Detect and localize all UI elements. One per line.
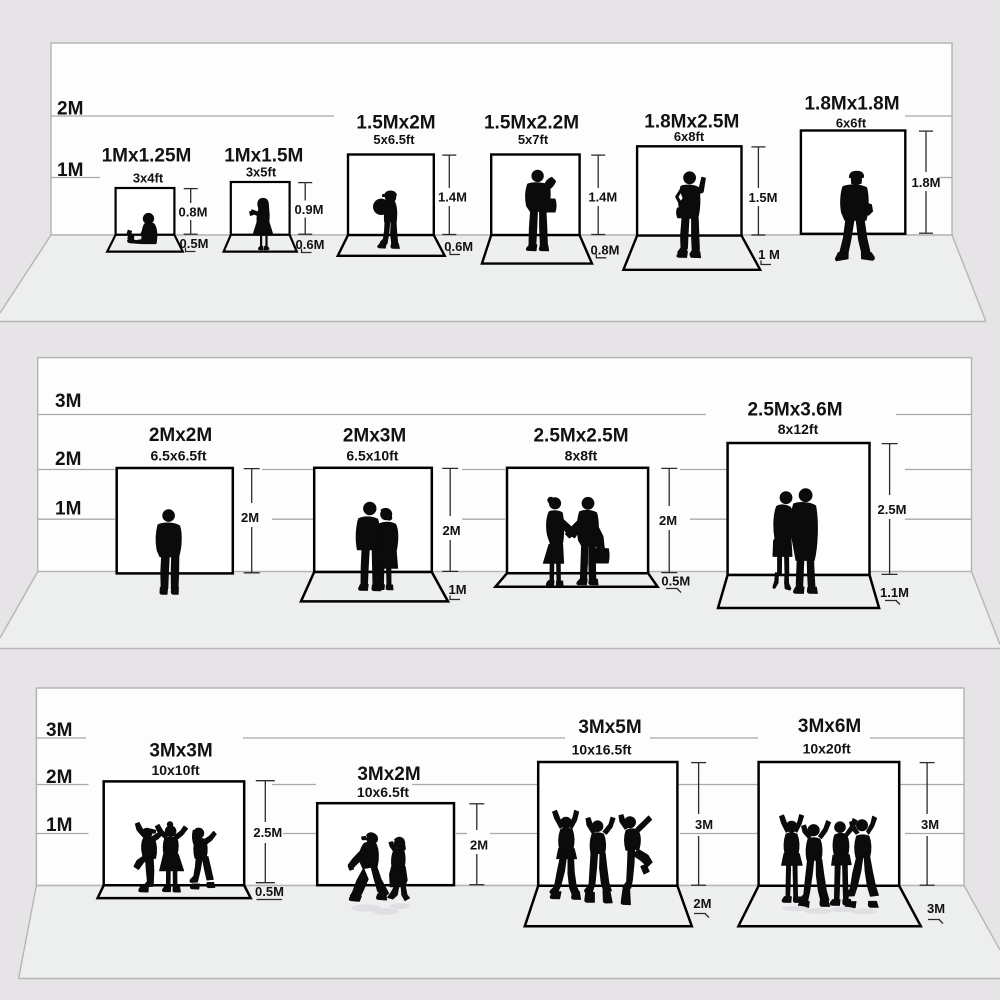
svg-text:10x16.5ft: 10x16.5ft	[572, 742, 632, 758]
svg-text:0.5M: 0.5M	[661, 573, 690, 588]
svg-text:2M: 2M	[57, 99, 83, 120]
svg-text:0.6M: 0.6M	[444, 239, 473, 254]
svg-text:3M: 3M	[695, 817, 713, 832]
svg-text:1M: 1M	[57, 160, 83, 181]
svg-text:1Mx1.5M: 1Mx1.5M	[224, 146, 303, 167]
svg-text:3M: 3M	[927, 901, 945, 916]
svg-text:0.8M: 0.8M	[591, 242, 620, 257]
svg-text:10x20ft: 10x20ft	[803, 741, 852, 757]
svg-text:8x12ft: 8x12ft	[778, 421, 819, 437]
svg-text:1.5Mx2M: 1.5Mx2M	[356, 113, 435, 134]
svg-text:2M: 2M	[470, 838, 488, 853]
svg-text:2.5Mx3.6M: 2.5Mx3.6M	[747, 400, 842, 421]
svg-text:6.5x10ft: 6.5x10ft	[346, 448, 398, 464]
svg-text:1.4M: 1.4M	[438, 190, 467, 205]
svg-text:1.5Mx2.2M: 1.5Mx2.2M	[484, 113, 579, 134]
svg-text:1.8M: 1.8M	[912, 175, 941, 190]
svg-text:2M: 2M	[55, 449, 81, 470]
svg-text:2Mx2M: 2Mx2M	[149, 425, 212, 446]
svg-text:2M: 2M	[659, 513, 677, 528]
svg-text:10x10ft: 10x10ft	[151, 762, 200, 778]
svg-text:2Mx3M: 2Mx3M	[343, 426, 406, 447]
svg-text:5x7ft: 5x7ft	[518, 132, 549, 147]
svg-text:1.1M: 1.1M	[880, 585, 909, 600]
svg-text:6.5x6.5ft: 6.5x6.5ft	[150, 448, 206, 464]
svg-text:0.8M: 0.8M	[179, 205, 208, 220]
svg-text:3M: 3M	[921, 817, 939, 832]
svg-text:6x6ft: 6x6ft	[836, 116, 867, 131]
svg-text:0.5M: 0.5M	[180, 236, 209, 251]
svg-text:3x4ft: 3x4ft	[133, 171, 164, 186]
svg-text:3Mx5M: 3Mx5M	[578, 717, 641, 738]
svg-text:0.9M: 0.9M	[295, 202, 324, 217]
svg-text:6x8ft: 6x8ft	[674, 129, 705, 144]
svg-text:3M: 3M	[46, 720, 72, 741]
svg-text:3Mx2M: 3Mx2M	[357, 764, 420, 785]
svg-text:3M: 3M	[55, 391, 81, 412]
svg-text:1.4M: 1.4M	[588, 190, 617, 205]
svg-text:3Mx3M: 3Mx3M	[149, 741, 212, 762]
svg-text:1.8Mx1.8M: 1.8Mx1.8M	[804, 94, 899, 115]
svg-text:5x6.5ft: 5x6.5ft	[373, 132, 415, 147]
svg-text:10x6.5ft: 10x6.5ft	[357, 784, 409, 800]
svg-text:3Mx6M: 3Mx6M	[798, 716, 861, 737]
svg-text:0.6M: 0.6M	[296, 237, 325, 252]
svg-text:0.5M: 0.5M	[255, 884, 284, 899]
svg-text:2.5M: 2.5M	[878, 502, 907, 517]
svg-text:1M: 1M	[448, 582, 466, 597]
svg-text:1Mx1.25M: 1Mx1.25M	[102, 146, 192, 167]
svg-text:1.5M: 1.5M	[749, 190, 778, 205]
svg-text:2.5Mx2.5M: 2.5Mx2.5M	[533, 426, 628, 447]
svg-text:2M: 2M	[241, 510, 259, 525]
svg-text:8x8ft: 8x8ft	[565, 448, 598, 464]
svg-text:3x5ft: 3x5ft	[246, 165, 277, 180]
svg-text:1 M: 1 M	[758, 247, 780, 262]
svg-text:1M: 1M	[55, 499, 81, 520]
svg-text:2M: 2M	[442, 523, 460, 538]
svg-text:2.5M: 2.5M	[253, 825, 282, 840]
svg-text:2M: 2M	[693, 896, 711, 911]
svg-text:2M: 2M	[46, 767, 72, 788]
svg-text:1M: 1M	[46, 815, 72, 836]
